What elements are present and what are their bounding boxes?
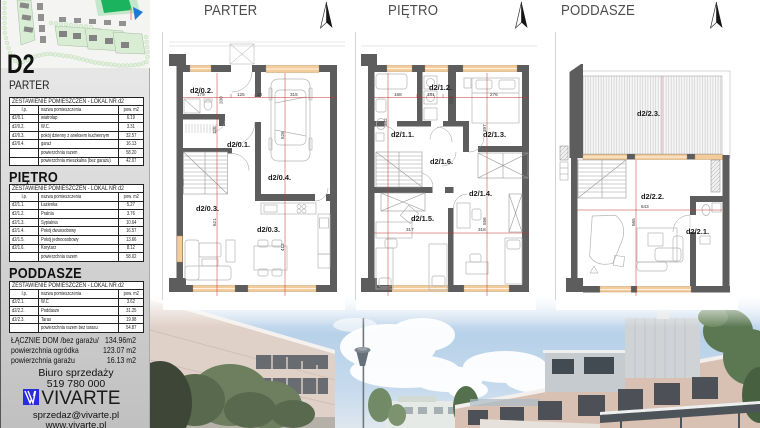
svg-text:412: 412 bbox=[280, 243, 285, 251]
svg-text:126: 126 bbox=[212, 126, 217, 134]
svg-text:d2/1.2.: d2/1.2. bbox=[429, 83, 452, 92]
svg-text:d2/1.4.: d2/1.4. bbox=[469, 189, 492, 198]
svg-text:526: 526 bbox=[280, 131, 285, 139]
svg-text:168: 168 bbox=[394, 92, 402, 97]
svg-text:d2/2.1.: d2/2.1. bbox=[686, 227, 709, 236]
svg-text:d2/1.3.: d2/1.3. bbox=[483, 130, 506, 139]
svg-text:d2/2.3.: d2/2.3. bbox=[637, 109, 660, 118]
svg-text:d2/1.5.: d2/1.5. bbox=[411, 214, 434, 223]
svg-text:d2/0.2.: d2/0.2. bbox=[190, 86, 213, 95]
svg-text:215: 215 bbox=[449, 96, 454, 104]
svg-text:VIVARTE: VIVARTE bbox=[41, 388, 120, 409]
svg-text:200: 200 bbox=[219, 96, 224, 104]
svg-text:d2/0.1.: d2/0.1. bbox=[227, 140, 250, 149]
svg-text:20: 20 bbox=[257, 92, 263, 97]
svg-text:276: 276 bbox=[490, 92, 498, 97]
svg-text:d2/0.3.: d2/0.3. bbox=[196, 204, 219, 213]
svg-text:315: 315 bbox=[290, 92, 298, 97]
svg-text:181: 181 bbox=[427, 92, 435, 97]
svg-text:332: 332 bbox=[383, 118, 388, 126]
svg-text:d2/0.4.: d2/0.4. bbox=[268, 173, 291, 182]
svg-text:d2/1.1.: d2/1.1. bbox=[391, 130, 414, 139]
svg-text:565: 565 bbox=[631, 218, 636, 226]
svg-text:556: 556 bbox=[482, 217, 487, 225]
svg-text:643: 643 bbox=[641, 204, 649, 209]
svg-text:d2/0.3.: d2/0.3. bbox=[257, 225, 280, 234]
svg-text:318: 318 bbox=[478, 227, 486, 232]
svg-text:621: 621 bbox=[212, 218, 217, 226]
svg-text:317: 317 bbox=[406, 227, 414, 232]
svg-text:d2/1.6.: d2/1.6. bbox=[430, 157, 453, 166]
svg-text:d2/2.2.: d2/2.2. bbox=[641, 192, 664, 201]
svg-text:125: 125 bbox=[237, 92, 245, 97]
